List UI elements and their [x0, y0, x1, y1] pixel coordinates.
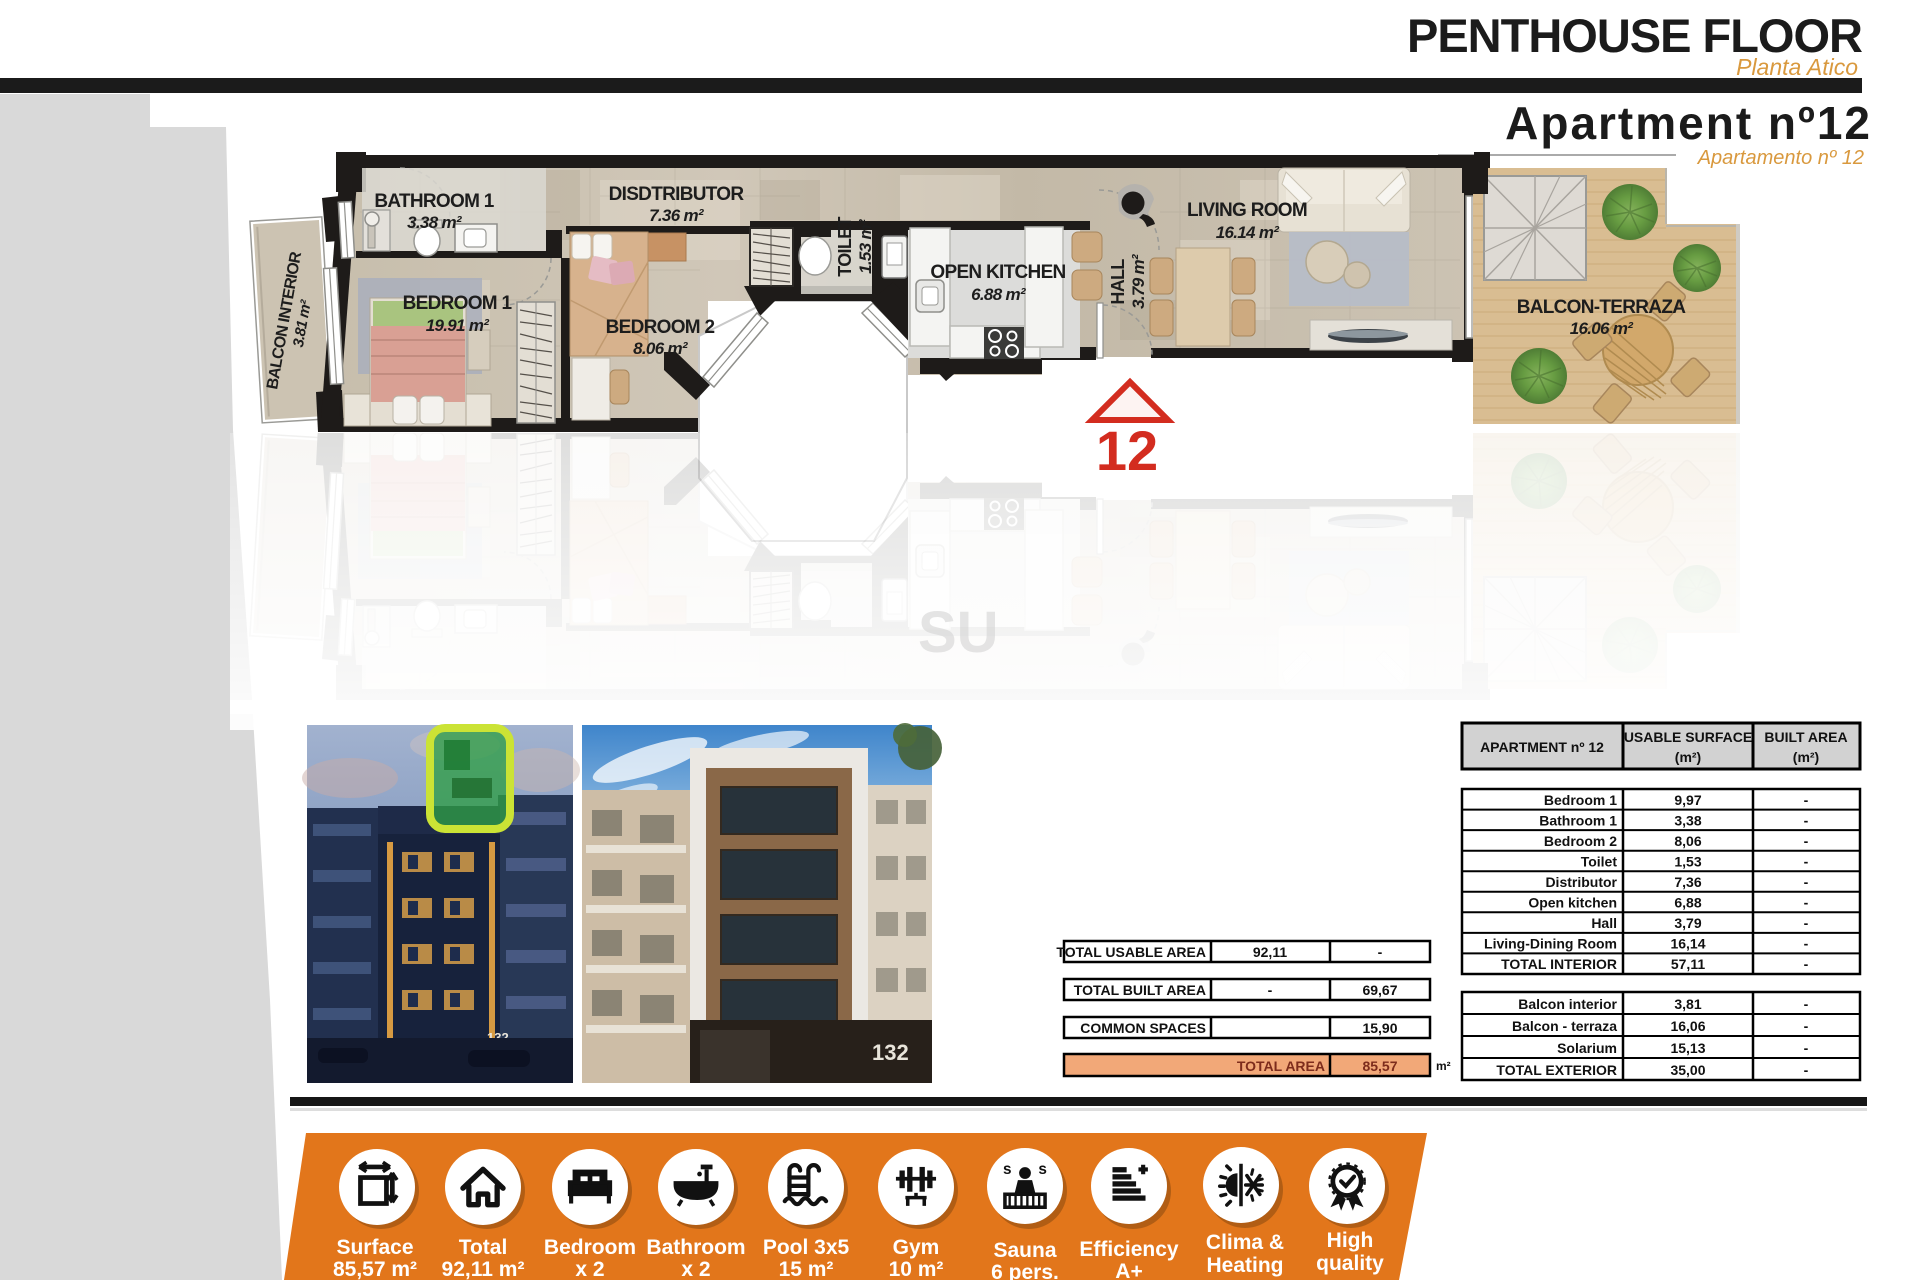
svg-text:10 m²: 10 m² [889, 1258, 944, 1280]
svg-text:6.88 m²: 6.88 m² [971, 285, 1027, 304]
svg-text:19.91 m²: 19.91 m² [426, 316, 490, 335]
svg-text:BATHROOM 1: BATHROOM 1 [374, 191, 494, 212]
svg-text:Distributor: Distributor [1545, 874, 1617, 890]
svg-text:High: High [1327, 1229, 1374, 1252]
svg-text:Planta Atico: Planta Atico [1736, 54, 1858, 80]
svg-text:quality: quality [1316, 1252, 1384, 1275]
svg-text:-: - [1804, 1062, 1809, 1078]
svg-text:Apartment nº12: Apartment nº12 [1505, 97, 1872, 149]
svg-text:Heating: Heating [1206, 1254, 1283, 1277]
svg-text:COMMON SPACES: COMMON SPACES [1080, 1020, 1206, 1036]
svg-text:Hall: Hall [1591, 915, 1617, 931]
svg-text:16.14 m²: 16.14 m² [1216, 223, 1280, 242]
svg-text:TOTAL EXTERIOR: TOTAL EXTERIOR [1496, 1062, 1617, 1078]
svg-text:BEDROOM 1: BEDROOM 1 [403, 293, 513, 314]
svg-text:Solarium: Solarium [1557, 1040, 1617, 1056]
svg-text:15,13: 15,13 [1670, 1040, 1705, 1056]
svg-text:-: - [1804, 1040, 1809, 1056]
svg-text:BUILT AREA: BUILT AREA [1764, 729, 1847, 745]
svg-text:m²: m² [1436, 1059, 1451, 1073]
svg-text:3.79 m²: 3.79 m² [1129, 253, 1148, 309]
svg-text:Open kitchen: Open kitchen [1528, 895, 1617, 911]
svg-text:92,11 m²: 92,11 m² [442, 1258, 525, 1280]
svg-text:Pool 3x5: Pool 3x5 [763, 1236, 850, 1259]
svg-text:3,79: 3,79 [1674, 915, 1701, 931]
svg-text:6 pers.: 6 pers. [991, 1261, 1059, 1280]
svg-text:-: - [1804, 996, 1809, 1012]
svg-text:15 m²: 15 m² [779, 1258, 834, 1280]
svg-text:1,53: 1,53 [1674, 854, 1701, 870]
svg-text:Balcon - terraza: Balcon - terraza [1512, 1018, 1617, 1034]
svg-text:TOTAL AREA: TOTAL AREA [1237, 1058, 1325, 1074]
svg-text:Bedroom: Bedroom [544, 1236, 636, 1259]
svg-text:Toilet: Toilet [1581, 854, 1618, 870]
svg-text:TOILET: TOILET [835, 217, 855, 277]
svg-text:12: 12 [1096, 419, 1158, 482]
svg-text:3,81: 3,81 [1674, 996, 1701, 1012]
svg-text:-: - [1804, 813, 1809, 829]
svg-text:Efficiency: Efficiency [1079, 1238, 1179, 1261]
svg-text:-: - [1804, 956, 1809, 972]
svg-text:s: s [1003, 1161, 1012, 1178]
svg-text:15,90: 15,90 [1362, 1020, 1397, 1036]
svg-text:85,57 m²: 85,57 m² [333, 1258, 417, 1280]
svg-text:DISDTRIBUTOR: DISDTRIBUTOR [609, 184, 745, 205]
svg-text:16.06 m²: 16.06 m² [1570, 319, 1634, 338]
svg-text:85,57: 85,57 [1362, 1058, 1397, 1074]
svg-text:57,11: 57,11 [1671, 956, 1705, 972]
svg-text:Gym: Gym [893, 1236, 940, 1259]
svg-text:x 2: x 2 [681, 1258, 710, 1280]
svg-text:USABLE SURFACE: USABLE SURFACE [1624, 729, 1752, 745]
svg-text:A+: A+ [1115, 1260, 1142, 1280]
svg-text:1.53 m²: 1.53 m² [856, 218, 875, 274]
svg-text:BALCON-TERRAZA: BALCON-TERRAZA [1517, 297, 1687, 318]
svg-text:Bedroom 2: Bedroom 2 [1544, 833, 1617, 849]
svg-text:-: - [1804, 895, 1809, 911]
svg-text:(m²): (m²) [1675, 749, 1701, 765]
svg-text:-: - [1804, 792, 1809, 808]
svg-text:-: - [1804, 1018, 1809, 1034]
svg-text:7,36: 7,36 [1674, 874, 1701, 890]
svg-text:-: - [1804, 833, 1809, 849]
svg-text:-: - [1378, 944, 1383, 960]
svg-text:16,06: 16,06 [1670, 1018, 1705, 1034]
svg-text:Bathroom 1: Bathroom 1 [1539, 813, 1617, 829]
svg-text:Living-Dining Room: Living-Dining Room [1484, 936, 1617, 952]
svg-text:TOTAL USABLE AREA: TOTAL USABLE AREA [1056, 944, 1206, 960]
svg-text:9,97: 9,97 [1674, 792, 1701, 808]
svg-text:69,67: 69,67 [1362, 982, 1397, 998]
svg-text:x 2: x 2 [575, 1258, 604, 1280]
svg-text:132: 132 [872, 1040, 909, 1065]
svg-text:3,38: 3,38 [1674, 813, 1701, 829]
svg-text:Sauna: Sauna [993, 1239, 1056, 1262]
svg-text:-: - [1804, 854, 1809, 870]
svg-text:Surface: Surface [336, 1236, 413, 1259]
svg-text:BEDROOM 2: BEDROOM 2 [606, 317, 715, 338]
svg-text:8,06: 8,06 [1674, 833, 1701, 849]
svg-text:(m²): (m²) [1793, 749, 1819, 765]
svg-text:Bedroom 1: Bedroom 1 [1544, 792, 1617, 808]
svg-text:3.38 m²: 3.38 m² [407, 213, 463, 232]
svg-text:92,11: 92,11 [1253, 944, 1287, 960]
svg-text:Apartamento nº 12: Apartamento nº 12 [1697, 147, 1864, 169]
svg-text:TOTAL BUILT AREA: TOTAL BUILT AREA [1074, 982, 1206, 998]
svg-text:-: - [1804, 915, 1809, 931]
svg-text:Clima &: Clima & [1206, 1231, 1284, 1254]
svg-text:-: - [1268, 982, 1273, 998]
svg-text:TOTAL INTERIOR: TOTAL INTERIOR [1501, 956, 1617, 972]
svg-text:35,00: 35,00 [1670, 1062, 1705, 1078]
svg-text:SU: SU [918, 600, 999, 665]
svg-text:LIVING ROOM: LIVING ROOM [1187, 200, 1307, 221]
svg-text:s: s [1038, 1161, 1047, 1178]
svg-text:-: - [1804, 936, 1809, 952]
svg-text:8.06 m²: 8.06 m² [633, 339, 689, 358]
svg-text:APARTMENT nº 12: APARTMENT nº 12 [1480, 739, 1604, 755]
svg-text:-: - [1804, 874, 1809, 890]
svg-text:6,88: 6,88 [1674, 895, 1701, 911]
svg-text:7.36 m²: 7.36 m² [649, 206, 705, 225]
svg-text:Total: Total [459, 1236, 508, 1259]
svg-text:OPEN KITCHEN: OPEN KITCHEN [930, 262, 1065, 283]
svg-text:Balcon interior: Balcon interior [1518, 996, 1617, 1012]
svg-text:16,14: 16,14 [1670, 936, 1705, 952]
svg-text:Bathroom: Bathroom [646, 1236, 745, 1259]
svg-text:HALL: HALL [1108, 259, 1128, 305]
